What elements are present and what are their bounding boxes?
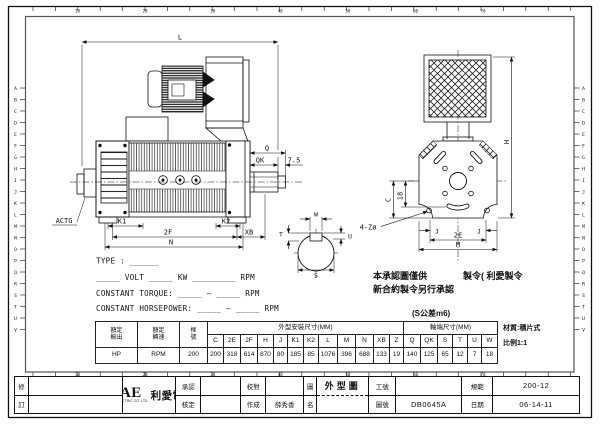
cell-value: 140 (404, 348, 421, 364)
svg-text:R: R (582, 281, 585, 287)
material-scale-note: 材質:積片式 比例1:1 (503, 325, 540, 355)
spec-value: 200-12 (493, 377, 579, 396)
col-header: N (356, 335, 374, 348)
svg-text:S: S (14, 293, 17, 299)
dim-label-18: 18 (397, 192, 405, 200)
col-rated-speed: 額定 轉速 (138, 322, 180, 348)
dwg-no-label: 圖號 (369, 396, 395, 414)
proof-value (266, 377, 303, 396)
svg-text:D: D (14, 120, 17, 126)
dim-label-QK: QK (256, 157, 265, 165)
svg-text:M: M (582, 224, 585, 230)
date-value: 06-14-11 (493, 396, 579, 414)
dim-label-XB: XB (245, 229, 253, 237)
cell-value: 1076 (319, 348, 338, 364)
cell-value: 396 (338, 348, 356, 364)
svg-text:J: J (14, 189, 17, 195)
made-label: 作成 (241, 396, 265, 414)
cell-value: 7 (468, 348, 482, 364)
svg-text:L: L (14, 212, 17, 218)
blower-motor (148, 66, 214, 112)
logo-subtext: LI AVE ELECTRIC CO.,LTD (123, 400, 148, 403)
svg-text:S: S (582, 293, 585, 299)
svg-text:Q: Q (582, 270, 585, 276)
terminal-box (126, 117, 168, 141)
tolerance-note: (S公差m6) (412, 308, 451, 318)
svg-text:40: 40 (278, 9, 283, 14)
svg-text:A: A (582, 86, 585, 92)
cell-value: 12 (453, 348, 468, 364)
col-header: Q (404, 335, 421, 348)
col-header: 2E (224, 335, 241, 348)
svg-text:H: H (14, 166, 17, 172)
col-frame-no: 框 號 (180, 322, 208, 348)
svg-text:O: O (582, 247, 585, 253)
proof-label: 校對 (241, 377, 265, 396)
svg-text:30: 30 (210, 9, 215, 14)
svg-text:A: A (14, 86, 17, 92)
type-line: TYPE : ______ (96, 257, 159, 266)
spec-table: 額定 輸出 額定 轉速 框 號 外型安裝尺寸(MM) 軸端尺寸(MM) C 2E… (95, 321, 498, 364)
dwg-no-value: DB0645A (396, 396, 461, 414)
svg-text:50: 50 (345, 9, 350, 14)
cell-value: 65 (438, 348, 453, 364)
svg-text:T: T (14, 304, 17, 310)
cell-value: 18 (482, 348, 498, 364)
scale-note: 比例1:1 (503, 340, 540, 347)
svg-text:U: U (582, 316, 585, 322)
svg-text:B: B (582, 97, 585, 103)
dim-label-J-right: J (477, 228, 481, 236)
material-note: 材質:積片式 (503, 325, 540, 332)
dim-label-H: H (503, 140, 511, 144)
col-header: J (274, 335, 288, 348)
logo-cjk-text: 利愛電氣 (151, 388, 177, 403)
svg-text:P: P (582, 258, 585, 264)
svg-text:F: F (582, 143, 585, 149)
col-header: C (208, 335, 224, 348)
value-output: HP (96, 348, 138, 364)
cell-value: 19 (390, 348, 404, 364)
svg-text:N: N (582, 235, 585, 241)
revision-label-bottom: 訂 (15, 396, 28, 414)
svg-text:M: M (14, 224, 17, 230)
dim-label-J-left: J (435, 228, 439, 236)
svg-text:G: G (14, 155, 17, 161)
dim-label-2F: 2F (164, 229, 172, 237)
note-line2: 新合約製令另行承認 (373, 284, 454, 295)
note-line1b: 製令( 利愛製令 (462, 270, 523, 281)
col-header: 2F (241, 335, 258, 348)
col-header: T (453, 335, 468, 348)
svg-text:I: I (582, 178, 585, 184)
cell-value: 185 (288, 348, 304, 364)
svg-text:P: P (14, 258, 17, 264)
col-header: L (319, 335, 338, 348)
dim-label-M: M (456, 241, 460, 249)
svg-text:10: 10 (75, 9, 80, 14)
cell-value: 318 (224, 348, 241, 364)
cell-value: 133 (374, 348, 390, 364)
dim-label-U: U (348, 233, 352, 241)
cell-value: 80 (274, 348, 288, 364)
svg-text:C: C (582, 109, 585, 115)
company-logo: LAE LI AVE ELECTRIC CO.,LTD 利愛電氣 (123, 377, 176, 413)
dim-label-L: L (178, 34, 182, 42)
svg-text:H: H (582, 166, 585, 172)
dim-label-K1: K1 (118, 218, 126, 226)
cell-value: 614 (241, 348, 258, 364)
approval-note: 本承認圖僅供 製令( 利愛製令 新合約製令另行承認 (S公差m6) (373, 270, 523, 318)
svg-text:K: K (582, 201, 585, 207)
svg-text:I: I (14, 178, 17, 184)
col-header: QK (421, 335, 438, 348)
spec-label: 規範 (462, 377, 492, 396)
col-header: K1 (288, 335, 304, 348)
col-header: M (338, 335, 356, 348)
svg-text:K: K (14, 201, 17, 207)
svg-text:70: 70 (481, 9, 486, 14)
work-no-label: 工號 (369, 377, 395, 396)
dim-label-Q: Q (265, 145, 269, 153)
col-header: U (468, 335, 482, 348)
svg-text:20: 20 (143, 9, 148, 14)
dim-label-T: T (279, 231, 283, 239)
value-speed: RPM (138, 348, 180, 364)
svg-text:E: E (582, 132, 585, 138)
dim-label-S: S (314, 272, 318, 280)
col-rated-output: 額定 輸出 (96, 322, 138, 348)
svg-text:O: O (14, 247, 17, 253)
volt-line: _____ VOLT _____ KW _________ RPM (96, 273, 255, 282)
drawing-name-value: 外型圖 (317, 377, 368, 396)
date-label: 日期 (462, 396, 492, 414)
drawing-name-label-top: 圖 (304, 377, 316, 396)
dim-label-7-5: 7.5 (288, 157, 301, 165)
svg-text:U: U (14, 316, 17, 322)
side-view (70, 57, 302, 223)
drawing-name-label-bottom: 名 (304, 396, 316, 414)
svg-text:R: R (14, 281, 17, 287)
mount-dims-group: 外型安裝尺寸(MM) (208, 322, 404, 335)
dim-label-4-Z: 4-Zø (360, 224, 378, 232)
torque-line: CONSTANT TORQUE: _____ — _____ RPM (96, 289, 260, 298)
dim-label-K2: K2 (222, 218, 230, 226)
svg-text:D: D (582, 120, 585, 126)
dim-label-C: C (385, 198, 393, 202)
svg-text:E: E (14, 132, 17, 138)
cell-value: 125 (421, 348, 438, 364)
revision-label-top: 修 (15, 377, 28, 396)
approve-label: 承認 (176, 377, 200, 396)
col-header: S (438, 335, 453, 348)
svg-text:L: L (582, 212, 585, 218)
ratify-value (201, 396, 240, 414)
col-header: K2 (304, 335, 319, 348)
svg-text:G: G (582, 155, 585, 161)
dim-label-W: W (314, 211, 318, 219)
svg-text:J: J (582, 189, 585, 195)
svg-text:N: N (14, 235, 17, 241)
col-header: H (258, 335, 274, 348)
dim-label-N: N (169, 239, 173, 247)
tach-generator (77, 169, 96, 197)
cell-value: 688 (356, 348, 374, 364)
work-no-value (396, 377, 461, 396)
made-value: 薛秀香 (266, 396, 303, 414)
svg-text:Q: Q (14, 270, 17, 276)
svg-text:60: 60 (413, 9, 418, 14)
shaft-end-view (288, 217, 345, 277)
drawing-sheet: AABBCCDDEEFFGGHHIIJJKKLLMMNNOOPPQQRRSSTT… (0, 0, 600, 424)
logo-text: LAE (123, 387, 148, 401)
revision-area (29, 377, 123, 413)
value-frame: 200 (180, 348, 208, 364)
svg-text:C: C (14, 109, 17, 115)
horsepower-line: CONSTANT HORSEPOWER: _____ — _____ RPM (96, 304, 279, 313)
svg-text:T: T (582, 304, 585, 310)
svg-text:V: V (582, 327, 585, 333)
dim-label-2E: 2E (454, 232, 462, 240)
title-block: 修 訂 LAE LI AVE ELECTRIC CO.,LTD 利愛電氣 承認 … (14, 376, 580, 414)
cell-value: 870 (258, 348, 274, 364)
col-header: XB (374, 335, 390, 348)
approve-value (201, 377, 240, 396)
svg-text:V: V (14, 327, 17, 333)
tach-label: ACTG (56, 217, 73, 225)
shaft-dims-group: 軸端尺寸(MM) (404, 322, 498, 335)
cell-value: 85 (304, 348, 319, 364)
note-line1a: 本承認圖僅供 (373, 270, 427, 281)
ratify-label: 核定 (176, 396, 200, 414)
svg-text:F: F (14, 143, 17, 149)
spec-lines: TYPE : ______ _____ VOLT _____ KW ______… (96, 257, 279, 314)
cell-value: 200 (208, 348, 224, 364)
svg-text:B: B (14, 97, 17, 103)
col-header: Z (390, 335, 404, 348)
col-header: W (482, 335, 498, 348)
